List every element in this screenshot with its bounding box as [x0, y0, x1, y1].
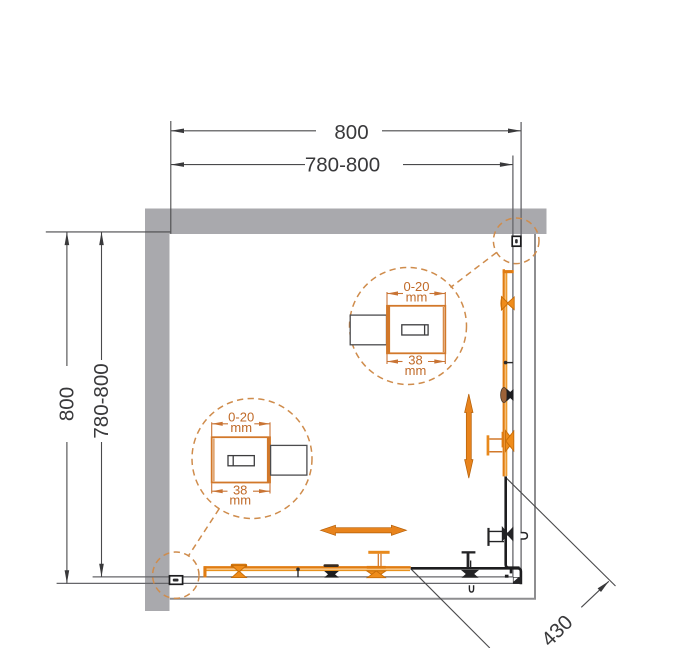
svg-text:mm: mm	[230, 420, 252, 435]
svg-text:mm: mm	[405, 363, 427, 378]
svg-text:mm: mm	[406, 290, 428, 305]
svg-text:800: 800	[56, 387, 79, 421]
svg-text:780-800: 780-800	[90, 363, 113, 438]
svg-text:800: 800	[334, 121, 368, 144]
svg-text:780-800: 780-800	[305, 154, 380, 177]
svg-text:mm: mm	[229, 493, 251, 508]
